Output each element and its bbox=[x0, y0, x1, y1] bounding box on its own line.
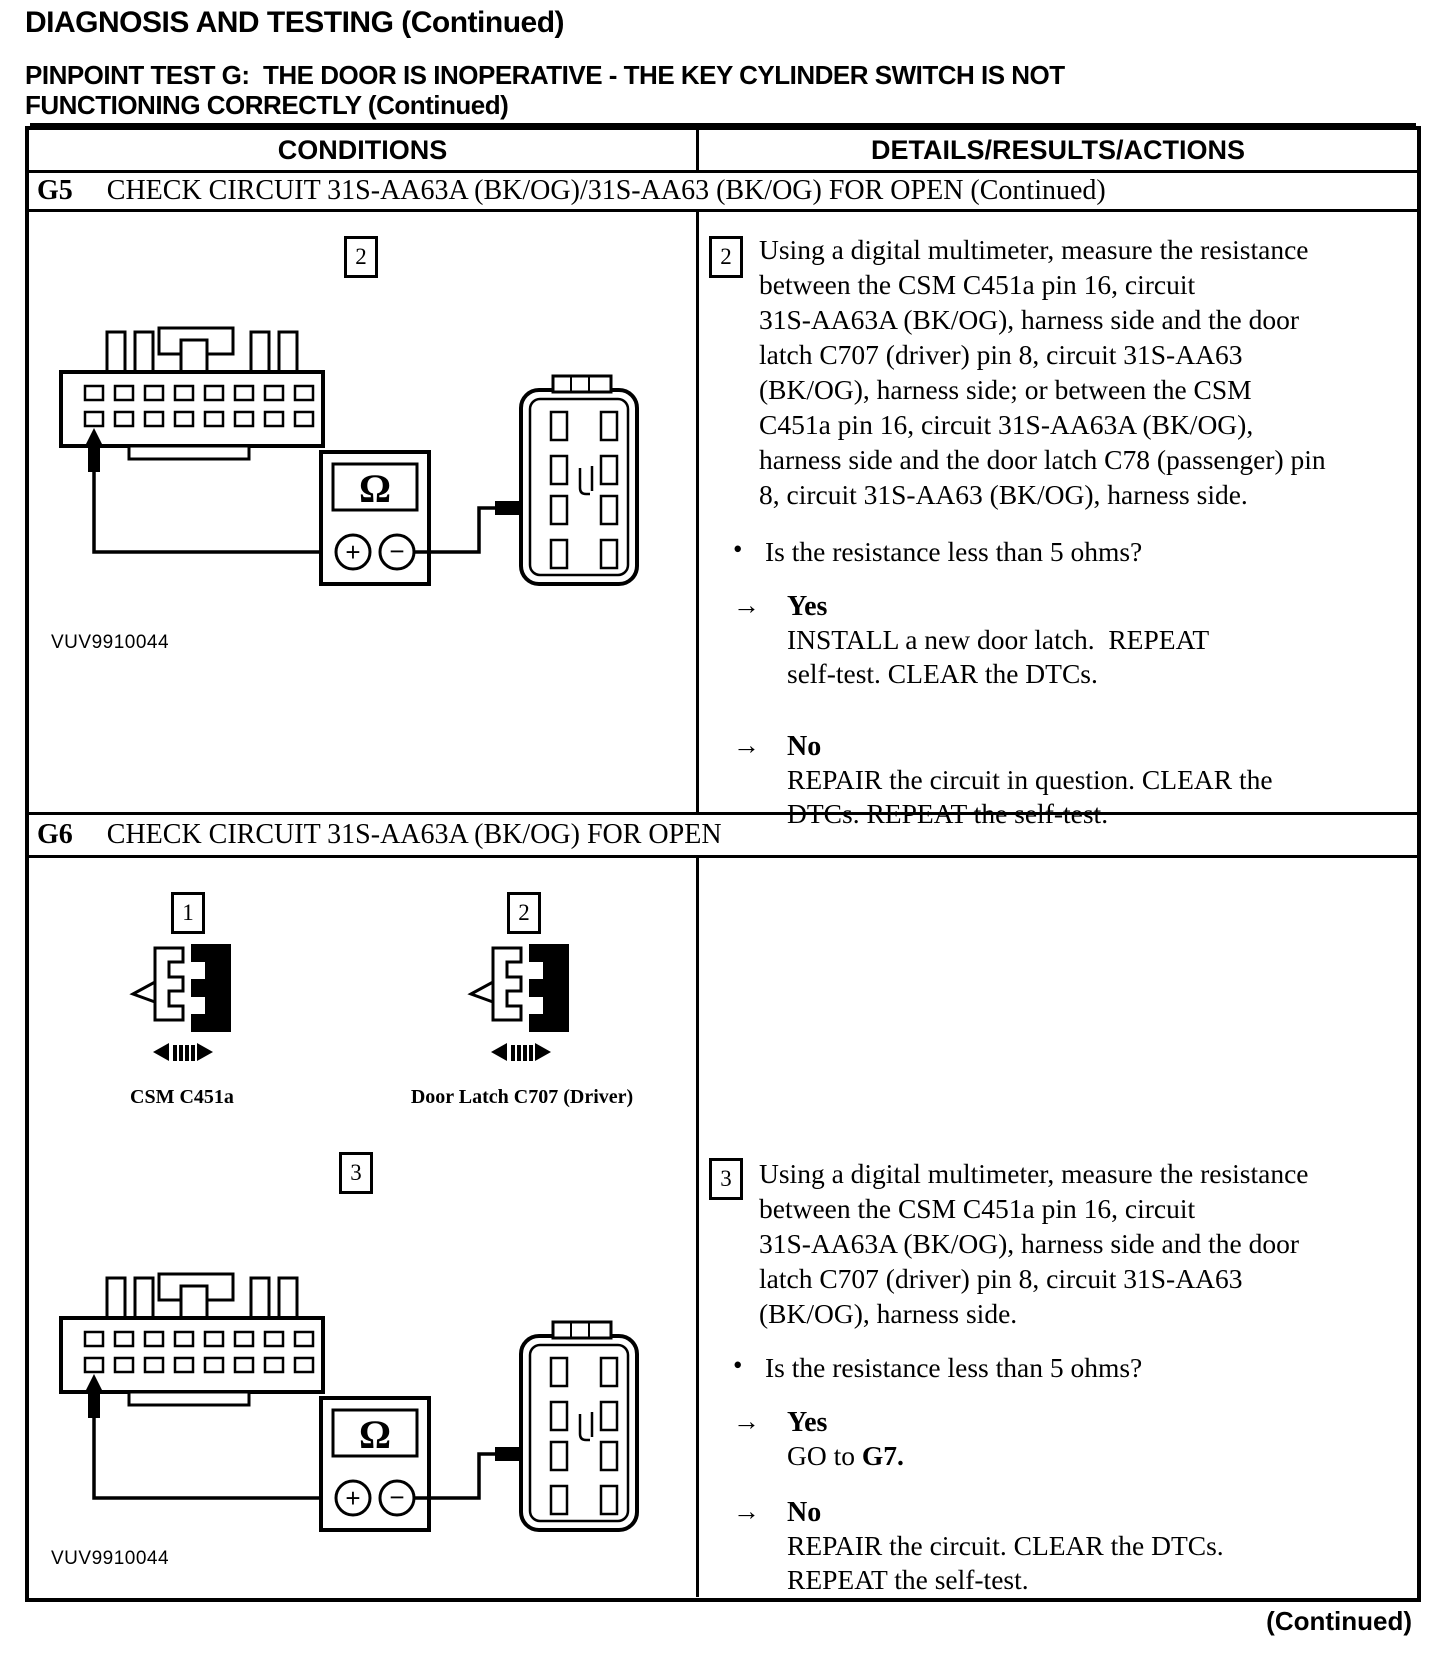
page-subtitle-line: PINPOINT TEST G: THE DOOR IS INOPERATIVE… bbox=[25, 60, 1065, 90]
g5-title: CHECK CIRCUIT 31S-AA63A (BK/OG)/31S-AA63… bbox=[107, 175, 1106, 207]
figure-caption: VUV9910044 bbox=[51, 632, 169, 654]
text-line: (BK/OG), harness side; or between the CS… bbox=[759, 372, 1326, 407]
plus-terminal: + bbox=[345, 1483, 360, 1513]
conditions-header: CONDITIONS bbox=[29, 130, 699, 170]
g6-question-row: • Is the resistance less than 5 ohms? bbox=[733, 1350, 1142, 1385]
no-action-line: REPAIR the circuit in question. CLEAR th… bbox=[787, 763, 1273, 797]
yes-action-line: GO to G7. bbox=[787, 1439, 904, 1473]
text-line: between the CSM C451a pin 16, circuit bbox=[759, 267, 1326, 302]
g5-body-row: 2 Ω + − VUV9910044 2 Using a digital mul… bbox=[29, 209, 1417, 812]
table-header-row: CONDITIONS DETAILS/RESULTS/ACTIONS bbox=[29, 130, 1417, 170]
text-line: (BK/OG), harness side. bbox=[759, 1296, 1309, 1331]
minus-terminal: − bbox=[389, 1482, 404, 1512]
page-subtitle: PINPOINT TEST G: THE DOOR IS INOPERATIVE… bbox=[25, 60, 1065, 120]
step-number: 3 bbox=[720, 1166, 732, 1192]
g5-question: Is the resistance less than 5 ohms? bbox=[765, 534, 1142, 569]
no-label: No bbox=[787, 730, 1273, 763]
g6-details-cell: 3 Using a digital multimeter, measure th… bbox=[699, 858, 1417, 1597]
disconnect-connector-icon bbox=[117, 944, 247, 1069]
connector-label: CSM C451a bbox=[87, 1086, 277, 1109]
ohm-symbol: Ω bbox=[359, 1412, 391, 1457]
pinpoint-test-table: CONDITIONS DETAILS/RESULTS/ACTIONS G5 CH… bbox=[25, 126, 1421, 1602]
g6-yes-answer: → Yes GO to G7. bbox=[733, 1406, 904, 1473]
no-action-line: REPAIR the circuit. CLEAR the DTCs. bbox=[787, 1529, 1224, 1563]
yes-label: Yes bbox=[787, 1406, 904, 1439]
text-line: latch C707 (driver) pin 8, circuit 31S-A… bbox=[759, 1261, 1309, 1296]
text-line: C451a pin 16, circuit 31S-AA63A (BK/OG), bbox=[759, 407, 1326, 442]
no-action-line: DTCs. REPEAT the self-test. bbox=[787, 797, 1273, 831]
page-title: DIAGNOSIS AND TESTING (Continued) bbox=[25, 6, 564, 40]
connector-step-badge: 2 bbox=[507, 892, 541, 934]
yes-action-prefix: GO to bbox=[787, 1440, 862, 1471]
figure-step-badge: 3 bbox=[339, 1152, 373, 1194]
figure-caption: VUV9910044 bbox=[51, 1548, 169, 1570]
step-number-badge: 2 bbox=[709, 236, 743, 278]
figure-step-number: 3 bbox=[350, 1160, 362, 1186]
g5-no-answer: → No REPAIR the circuit in question. CLE… bbox=[733, 730, 1273, 831]
g6-body-row: 1 2 CSM C451a Door Latch C707 (Driver) 3… bbox=[29, 855, 1417, 1597]
ohm-symbol: Ω bbox=[359, 466, 391, 511]
minus-terminal: − bbox=[389, 536, 404, 566]
g5-yes-answer: → Yes INSTALL a new door latch. REPEAT s… bbox=[733, 590, 1209, 691]
text-line: Using a digital multimeter, measure the … bbox=[759, 1156, 1309, 1191]
text-line: 31S-AA63A (BK/OG), harness side and the … bbox=[759, 302, 1326, 337]
no-label: No bbox=[787, 1496, 1224, 1529]
page-subtitle-line: FUNCTIONING CORRECTLY (Continued) bbox=[25, 90, 1065, 120]
details-header: DETAILS/RESULTS/ACTIONS bbox=[699, 130, 1417, 170]
yes-action-target: G7. bbox=[862, 1440, 904, 1471]
g6-step-text: Using a digital multimeter, measure the … bbox=[759, 1156, 1309, 1331]
connector-step-number: 2 bbox=[518, 900, 530, 926]
text-line: latch C707 (driver) pin 8, circuit 31S-A… bbox=[759, 337, 1326, 372]
text-line: Using a digital multimeter, measure the … bbox=[759, 232, 1326, 267]
g6-step-id: G6 bbox=[37, 819, 73, 851]
step-number: 2 bbox=[720, 244, 732, 270]
text-line: harness side and the door latch C78 (pas… bbox=[759, 442, 1326, 477]
text-line: between the CSM C451a pin 16, circuit bbox=[759, 1191, 1309, 1226]
g5-question-row: • Is the resistance less than 5 ohms? bbox=[733, 534, 1142, 569]
figure-step-badge: 2 bbox=[344, 236, 378, 278]
disconnect-connector-icon bbox=[455, 944, 585, 1069]
g5-details-cell: 2 Using a digital multimeter, measure th… bbox=[699, 212, 1417, 812]
arrow-right-icon: → bbox=[733, 1496, 760, 1527]
yes-action-line: INSTALL a new door latch. REPEAT bbox=[787, 623, 1209, 657]
multimeter-circuit-diagram: Ω + − bbox=[59, 300, 644, 595]
continued-footer: (Continued) bbox=[1266, 1606, 1412, 1637]
connector-step-badge: 1 bbox=[171, 892, 205, 934]
g5-conditions-cell: 2 Ω + − VUV9910044 bbox=[29, 212, 699, 812]
yes-label: Yes bbox=[787, 590, 1209, 623]
bullet-icon: • bbox=[733, 534, 765, 569]
g5-step-id: G5 bbox=[37, 175, 73, 207]
g5-title-row: G5 CHECK CIRCUIT 31S-AA63A (BK/OG)/31S-A… bbox=[29, 170, 1417, 209]
g6-title: CHECK CIRCUIT 31S-AA63A (BK/OG) FOR OPEN bbox=[107, 819, 722, 851]
text-line: 31S-AA63A (BK/OG), harness side and the … bbox=[759, 1226, 1309, 1261]
bullet-icon: • bbox=[733, 1350, 765, 1385]
connector-label: Door Latch C707 (Driver) bbox=[377, 1086, 667, 1109]
text-line: 8, circuit 31S-AA63 (BK/OG), harness sid… bbox=[759, 477, 1326, 512]
arrow-right-icon: → bbox=[733, 730, 760, 761]
figure-step-number: 2 bbox=[355, 244, 367, 270]
arrow-right-icon: → bbox=[733, 590, 760, 621]
step-number-badge: 3 bbox=[709, 1158, 743, 1200]
g5-step-text: Using a digital multimeter, measure the … bbox=[759, 232, 1326, 512]
yes-action-line: self-test. CLEAR the DTCs. bbox=[787, 657, 1209, 691]
arrow-right-icon: → bbox=[733, 1406, 760, 1437]
g6-question: Is the resistance less than 5 ohms? bbox=[765, 1350, 1142, 1385]
plus-terminal: + bbox=[345, 537, 360, 567]
g6-conditions-cell: 1 2 CSM C451a Door Latch C707 (Driver) 3… bbox=[29, 858, 699, 1597]
g6-no-answer: → No REPAIR the circuit. CLEAR the DTCs.… bbox=[733, 1496, 1224, 1597]
multimeter-circuit-diagram: Ω + − bbox=[59, 1246, 644, 1541]
no-action-line: REPEAT the self-test. bbox=[787, 1563, 1224, 1597]
connector-step-number: 1 bbox=[182, 900, 194, 926]
